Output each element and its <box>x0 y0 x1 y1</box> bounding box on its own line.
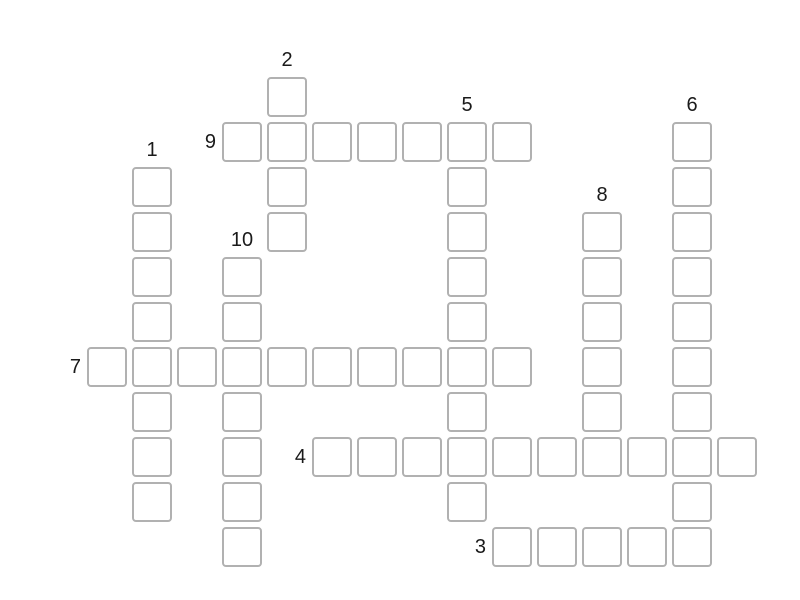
crossword-cell[interactable] <box>357 347 397 387</box>
crossword-cell[interactable] <box>132 482 172 522</box>
crossword-cell[interactable] <box>537 527 577 567</box>
crossword-cell[interactable] <box>132 437 172 477</box>
crossword-cell[interactable] <box>672 167 712 207</box>
crossword-cell[interactable] <box>132 302 172 342</box>
clue-number-3: 3 <box>448 533 486 561</box>
crossword-cell[interactable] <box>222 392 262 432</box>
clue-number-9: 9 <box>178 128 216 156</box>
clue-number-1: 1 <box>132 136 172 164</box>
crossword-cell[interactable] <box>132 392 172 432</box>
crossword-cell[interactable] <box>222 302 262 342</box>
crossword-cell[interactable] <box>582 347 622 387</box>
crossword-cell[interactable] <box>132 167 172 207</box>
crossword-cell[interactable] <box>582 257 622 297</box>
crossword-cell[interactable] <box>402 347 442 387</box>
clue-number-10: 10 <box>222 226 262 254</box>
crossword-cell[interactable] <box>582 392 622 432</box>
crossword-cell[interactable] <box>357 122 397 162</box>
crossword-cell[interactable] <box>582 527 622 567</box>
clue-number-2: 2 <box>267 46 307 74</box>
crossword-cell[interactable] <box>447 212 487 252</box>
crossword-cell[interactable] <box>312 437 352 477</box>
clue-number-8: 8 <box>582 181 622 209</box>
crossword-cell[interactable] <box>672 482 712 522</box>
crossword-cell[interactable] <box>132 212 172 252</box>
crossword-cell[interactable] <box>312 122 352 162</box>
crossword-cell[interactable] <box>672 212 712 252</box>
crossword-cell[interactable] <box>447 302 487 342</box>
crossword-cell[interactable] <box>132 347 172 387</box>
crossword-cell[interactable] <box>267 212 307 252</box>
clue-number-5: 5 <box>447 91 487 119</box>
crossword-cell[interactable] <box>672 302 712 342</box>
crossword-cell[interactable] <box>492 347 532 387</box>
crossword-cell[interactable] <box>582 437 622 477</box>
crossword-cell[interactable] <box>447 347 487 387</box>
crossword-cell[interactable] <box>267 122 307 162</box>
crossword-cell[interactable] <box>402 437 442 477</box>
crossword-cell[interactable] <box>267 347 307 387</box>
crossword-cell[interactable] <box>222 527 262 567</box>
crossword-cell[interactable] <box>357 437 397 477</box>
crossword-cell[interactable] <box>222 257 262 297</box>
crossword-cell[interactable] <box>447 122 487 162</box>
crossword-cell[interactable] <box>267 77 307 117</box>
crossword-cell[interactable] <box>402 122 442 162</box>
crossword-cell[interactable] <box>672 122 712 162</box>
crossword-cell[interactable] <box>132 257 172 297</box>
crossword-cell[interactable] <box>717 437 757 477</box>
crossword-cell[interactable] <box>222 482 262 522</box>
crossword-cell[interactable] <box>447 482 487 522</box>
crossword-cell[interactable] <box>492 122 532 162</box>
crossword-cell[interactable] <box>267 167 307 207</box>
crossword-cell[interactable] <box>447 392 487 432</box>
clue-number-7: 7 <box>43 353 81 381</box>
crossword-cell[interactable] <box>312 347 352 387</box>
crossword-cell[interactable] <box>87 347 127 387</box>
clue-number-6: 6 <box>672 91 712 119</box>
crossword-cell[interactable] <box>537 437 577 477</box>
crossword-cell[interactable] <box>222 437 262 477</box>
crossword-cell[interactable] <box>627 437 667 477</box>
crossword-cell[interactable] <box>582 302 622 342</box>
crossword-cell[interactable] <box>672 392 712 432</box>
crossword-cell[interactable] <box>222 347 262 387</box>
crossword-cell[interactable] <box>492 527 532 567</box>
crossword-cell[interactable] <box>582 212 622 252</box>
crossword-board: 97431256810 <box>0 0 800 600</box>
crossword-cell[interactable] <box>627 527 667 567</box>
crossword-cell[interactable] <box>447 257 487 297</box>
crossword-cell[interactable] <box>447 167 487 207</box>
crossword-cell[interactable] <box>672 347 712 387</box>
crossword-cell[interactable] <box>672 257 712 297</box>
crossword-cell[interactable] <box>177 347 217 387</box>
crossword-cell[interactable] <box>492 437 532 477</box>
crossword-cell[interactable] <box>222 122 262 162</box>
crossword-cell[interactable] <box>447 437 487 477</box>
crossword-cell[interactable] <box>672 437 712 477</box>
clue-number-4: 4 <box>268 443 306 471</box>
crossword-cell[interactable] <box>672 527 712 567</box>
